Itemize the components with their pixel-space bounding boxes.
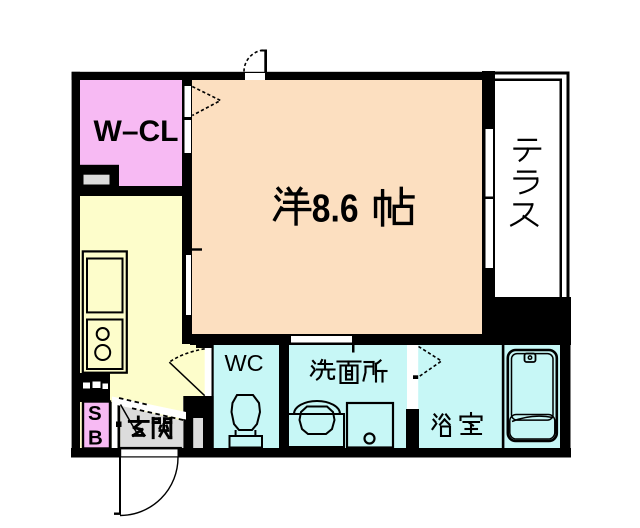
svg-text:WC: WC	[225, 350, 264, 376]
svg-text:B: B	[88, 427, 103, 450]
svg-text:W–CL: W–CL	[94, 115, 179, 148]
svg-text:S: S	[88, 402, 102, 425]
svg-text:8.6: 8.6	[312, 186, 359, 230]
